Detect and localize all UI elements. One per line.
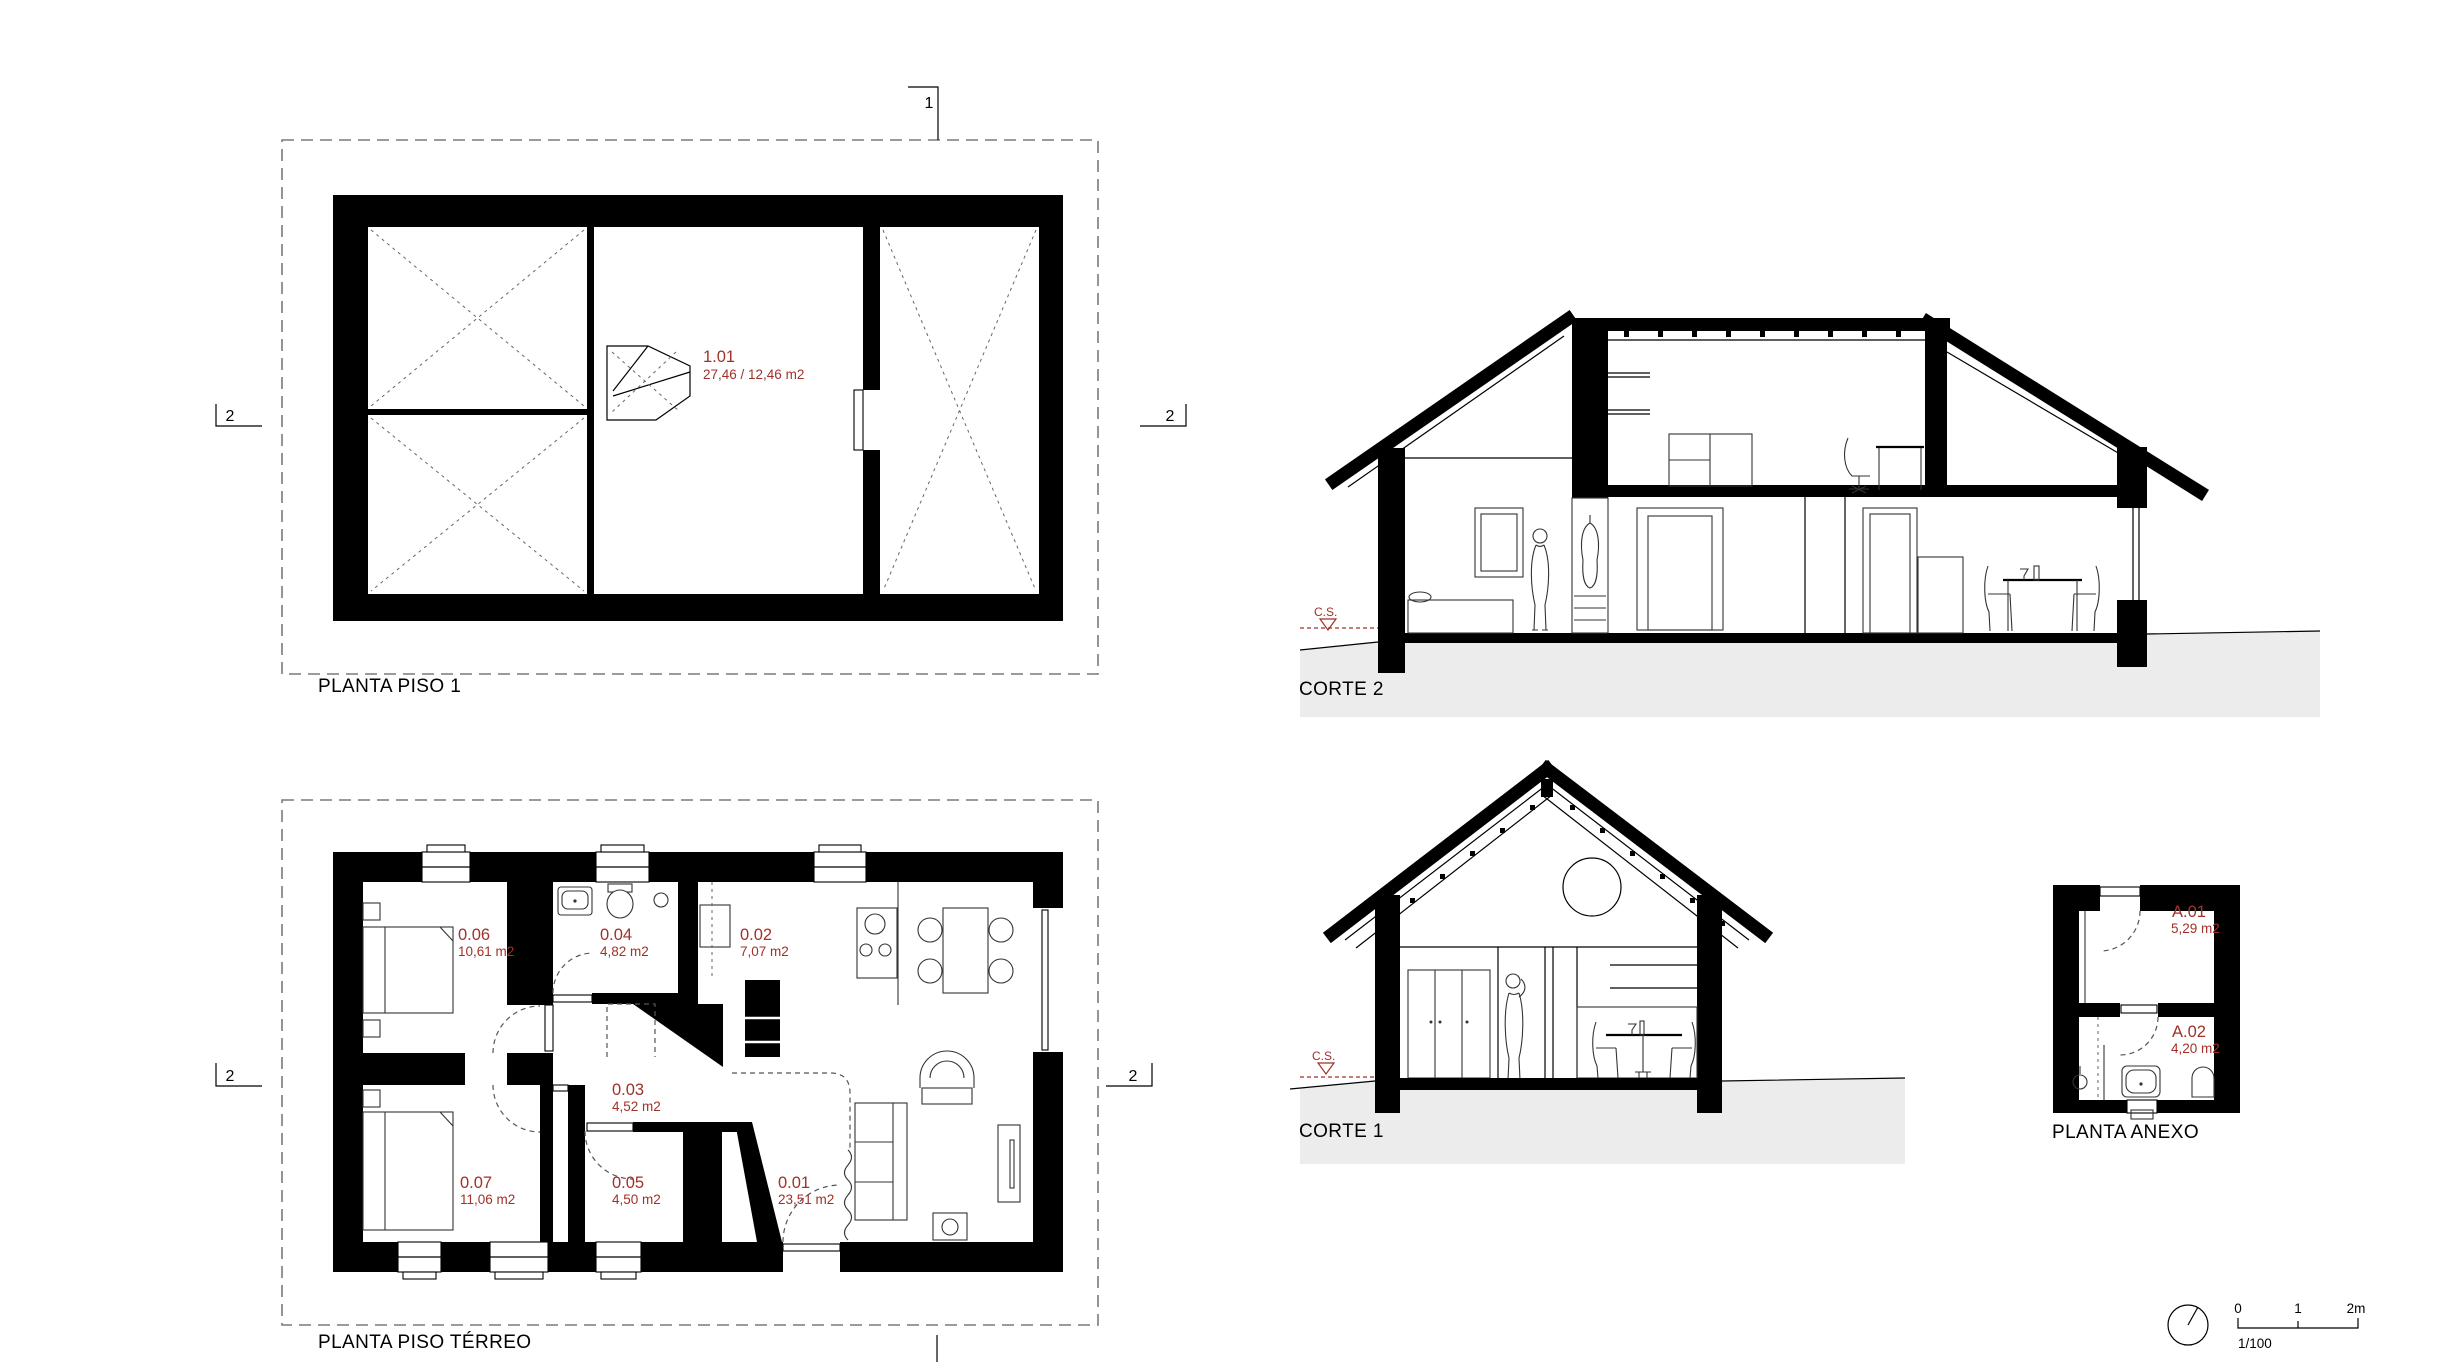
room-0-02-area: 7,07 m2 xyxy=(740,944,789,959)
planta-piso-terreo-drawing: 0.06 10,61 m2 0.04 4,82 m2 0.02 7,07 m2 … xyxy=(216,800,1152,1362)
corte-1-title: CORTE 1 xyxy=(1299,1121,1384,1142)
upper-room-furniture xyxy=(1608,373,1924,493)
planta-piso-1-drawing: 1.01 27,46 / 12,46 m2 PLANTA PISO 1 1 2 … xyxy=(216,87,1186,697)
wardrobe-section xyxy=(1408,970,1490,1078)
room-0-04-id: 0.04 xyxy=(600,926,632,944)
side-door xyxy=(1033,908,1063,1052)
sofa-drawing xyxy=(855,1103,907,1220)
room-1-01-id: 1.01 xyxy=(703,348,735,366)
room-0-05-area: 4,50 m2 xyxy=(612,1192,661,1207)
planta-anexo-title: PLANTA ANEXO xyxy=(2052,1122,2199,1143)
room-0-04-area: 4,82 m2 xyxy=(600,944,649,959)
svg-text:2: 2 xyxy=(1129,1068,1138,1085)
scale-tick-0: 0 xyxy=(2234,1301,2242,1316)
room-0-01-area: 23,51 m2 xyxy=(778,1192,834,1207)
person-silhouette xyxy=(1531,529,1548,630)
room-a-01-id: A.01 xyxy=(2172,903,2206,921)
section-marker-2-left-pt: 2 xyxy=(216,1063,262,1086)
datum-marker: C.S. xyxy=(1300,605,1380,630)
room-a-02-id: A.02 xyxy=(2172,1023,2206,1041)
room-0-07-area: 11,06 m2 xyxy=(460,1192,515,1207)
room-0-06-area: 10,61 m2 xyxy=(458,944,514,959)
bedroom-section xyxy=(1408,498,1608,633)
planta-piso-terreo-title: PLANTA PISO TÉRREO xyxy=(318,1332,531,1353)
svg-text:2: 2 xyxy=(226,408,235,425)
window xyxy=(2127,1100,2157,1119)
door-opening xyxy=(854,390,880,450)
drawing-sheet: 1.01 27,46 / 12,46 m2 PLANTA PISO 1 1 2 … xyxy=(0,0,2462,1362)
svg-text:2: 2 xyxy=(1166,408,1175,425)
svg-text:1: 1 xyxy=(925,95,934,112)
section-marker-2-right-p1: 2 xyxy=(1140,404,1186,426)
room-0-02-id: 0.02 xyxy=(740,926,772,944)
room-0-03-area: 4,52 m2 xyxy=(612,1099,661,1114)
svg-text:2: 2 xyxy=(226,1068,235,1085)
section-marker-2-right-pt: 2 xyxy=(1106,1063,1152,1086)
corte-2-drawing: C.S. xyxy=(1299,318,2320,717)
sink-icon xyxy=(558,887,592,915)
round-window-icon xyxy=(1563,858,1621,916)
room-a-02-area: 4,20 m2 xyxy=(2171,1041,2220,1056)
person-silhouette xyxy=(1505,974,1525,1080)
corte-1-drawing: C.S. xyxy=(1290,769,1905,1164)
wardrobe-niche xyxy=(1572,498,1608,633)
sink-icon xyxy=(2122,1066,2160,1097)
kitchen-section xyxy=(1577,965,1697,1078)
window xyxy=(398,1242,641,1279)
dining-section xyxy=(1985,566,2100,631)
scale-tick-1: 1 xyxy=(2294,1301,2302,1316)
room-0-06-id: 0.06 xyxy=(458,926,490,944)
svg-text:C.S.: C.S. xyxy=(1312,1049,1335,1063)
room-a-01-area: 5,29 m2 xyxy=(2171,921,2220,936)
toilet-icon xyxy=(2192,1067,2214,1097)
scale-ratio: 1/100 xyxy=(2238,1336,2272,1351)
planta-piso-1-title: PLANTA PISO 1 xyxy=(318,676,461,697)
ground-floor-section xyxy=(1637,497,2139,633)
room-0-05-id: 0.05 xyxy=(612,1174,644,1192)
scale-bar: 0 1 2m 1/100 xyxy=(2168,1301,2365,1351)
section-marker-1-top: 1 xyxy=(908,87,938,140)
section-marker-2-left-p1: 2 xyxy=(216,404,262,426)
room-0-03-id: 0.03 xyxy=(612,1081,644,1099)
room-0-07-id: 0.07 xyxy=(460,1174,492,1192)
svg-text:C.S.: C.S. xyxy=(1314,605,1337,619)
room-0-01-id: 0.01 xyxy=(778,1174,810,1192)
planta-anexo-drawing: A.01 5,29 m2 A.02 4,20 m2 PLANTA ANEXO xyxy=(2052,885,2240,1143)
office-chair-icon xyxy=(1845,438,1870,493)
room-1-01-area: 27,46 / 12,46 m2 xyxy=(703,367,804,382)
scale-tick-2m: 2m xyxy=(2347,1301,2366,1316)
corte-2-title: CORTE 2 xyxy=(1299,679,1384,700)
datum-marker: C.S. xyxy=(1300,1049,1377,1077)
desk-icon xyxy=(1879,447,1921,490)
architectural-drawing: 1.01 27,46 / 12,46 m2 PLANTA PISO 1 1 2 … xyxy=(0,0,2462,1362)
roof-battens xyxy=(1590,331,1931,337)
